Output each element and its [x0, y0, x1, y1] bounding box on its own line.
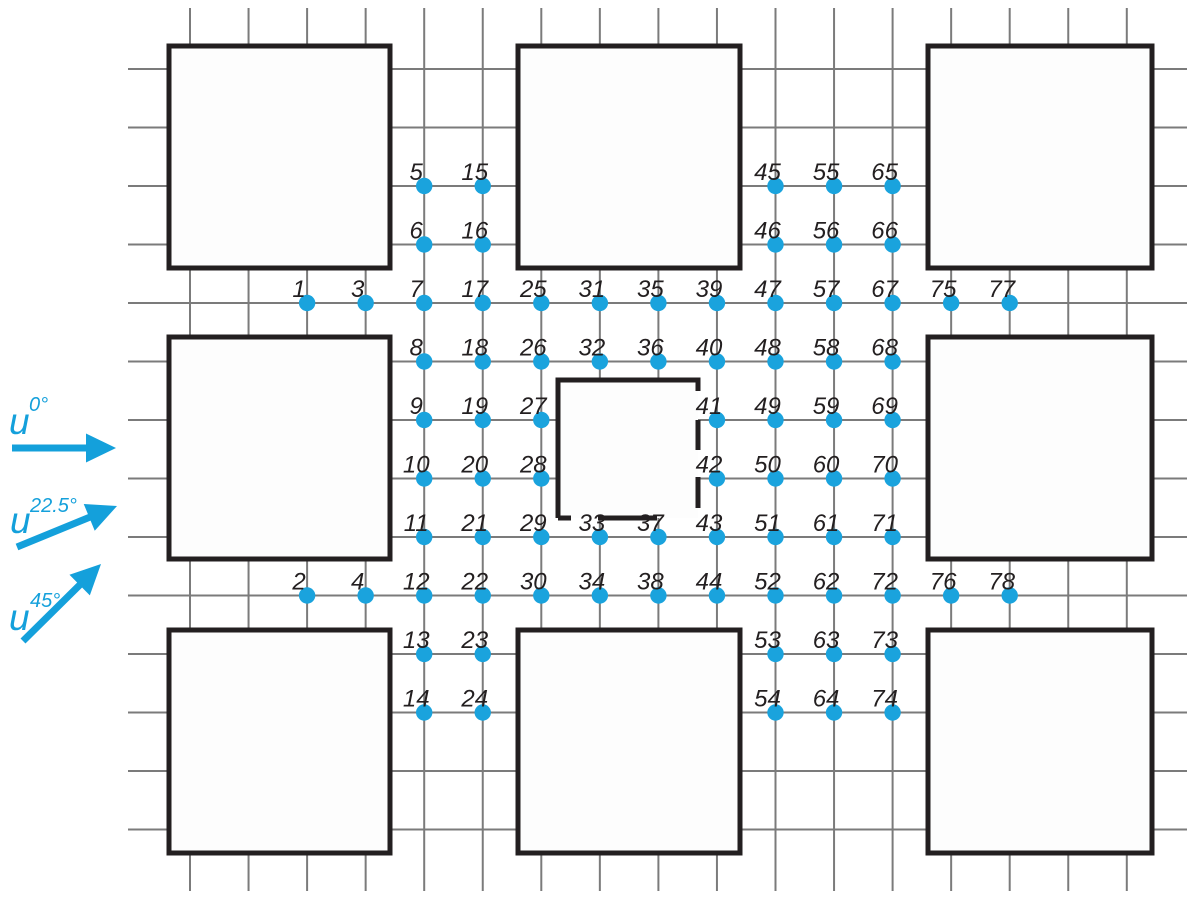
point-label-16: 16 [461, 218, 488, 245]
wind-0deg-label: u [9, 401, 30, 442]
point-label-57: 57 [813, 276, 841, 303]
building-top-right [928, 46, 1152, 268]
building-top-left [169, 46, 390, 268]
point-label-72: 72 [871, 569, 898, 596]
point-label-77: 77 [988, 276, 1016, 303]
point-label-68: 68 [871, 335, 898, 362]
wind-45deg-label: u [9, 597, 30, 638]
point-label-53: 53 [754, 627, 781, 654]
point-label-25: 25 [519, 276, 547, 303]
point-label-35: 35 [637, 276, 664, 303]
point-label-6: 6 [410, 218, 424, 245]
point-label-10: 10 [403, 452, 430, 479]
point-label-61: 61 [813, 510, 840, 537]
building-center-dashed [558, 380, 698, 518]
point-label-52: 52 [754, 569, 781, 596]
point-label-42: 42 [696, 452, 723, 479]
point-label-74: 74 [871, 686, 898, 713]
point-label-29: 29 [519, 510, 547, 537]
point-label-40: 40 [696, 335, 723, 362]
wind-0deg-label-superscript: 0° [29, 394, 48, 416]
point-label-12: 12 [403, 569, 430, 596]
point-label-2: 2 [291, 569, 305, 596]
point-label-24: 24 [460, 686, 488, 713]
point-label-48: 48 [754, 335, 781, 362]
point-label-76: 76 [930, 569, 957, 596]
building-top-center [518, 46, 740, 268]
point-label-44: 44 [696, 569, 723, 596]
point-label-31: 31 [578, 276, 605, 303]
point-label-78: 78 [988, 569, 1015, 596]
point-label-50: 50 [754, 452, 781, 479]
point-label-59: 59 [813, 393, 840, 420]
building-bottom-center [518, 630, 740, 853]
point-label-70: 70 [871, 452, 898, 479]
point-label-49: 49 [754, 393, 781, 420]
point-label-39: 39 [696, 276, 723, 303]
point-label-21: 21 [460, 510, 488, 537]
point-label-46: 46 [754, 218, 781, 245]
wind-22.5deg-label-superscript: 22.5° [29, 495, 77, 517]
point-label-3: 3 [351, 276, 365, 303]
point-label-71: 71 [871, 510, 898, 537]
point-label-63: 63 [813, 627, 840, 654]
point-label-19: 19 [461, 393, 488, 420]
point-label-20: 20 [460, 452, 488, 479]
figure-canvas: 1234567891011121314151617181920212223242… [0, 0, 1200, 900]
point-label-22: 22 [460, 569, 488, 596]
point-label-43: 43 [696, 510, 723, 537]
point-label-7: 7 [410, 276, 425, 303]
point-label-26: 26 [519, 335, 547, 362]
building-middle-right [928, 337, 1152, 559]
point-label-32: 32 [578, 335, 605, 362]
point-label-17: 17 [461, 276, 489, 303]
point-label-33: 33 [578, 510, 605, 537]
building-middle-left [169, 337, 390, 559]
point-label-55: 55 [813, 159, 840, 186]
point-label-54: 54 [754, 686, 781, 713]
point-label-60: 60 [813, 452, 840, 479]
point-label-4: 4 [351, 569, 364, 596]
point-label-28: 28 [519, 452, 547, 479]
point-label-11: 11 [404, 510, 429, 537]
point-label-1: 1 [292, 276, 305, 303]
building-bottom-left [169, 630, 390, 853]
point-label-41: 41 [696, 393, 723, 420]
point-label-58: 58 [813, 335, 840, 362]
point-label-47: 47 [754, 276, 782, 303]
point-label-27: 27 [519, 393, 548, 420]
point-label-62: 62 [813, 569, 840, 596]
point-label-30: 30 [520, 569, 547, 596]
point-label-36: 36 [637, 335, 664, 362]
point-label-34: 34 [578, 569, 605, 596]
point-label-15: 15 [461, 159, 488, 186]
point-label-5: 5 [410, 159, 424, 186]
point-label-66: 66 [871, 218, 898, 245]
center-building-fill [558, 380, 698, 518]
point-label-64: 64 [813, 686, 840, 713]
point-label-14: 14 [403, 686, 430, 713]
point-label-9: 9 [410, 393, 423, 420]
point-label-51: 51 [754, 510, 781, 537]
point-label-67: 67 [871, 276, 899, 303]
point-label-23: 23 [460, 627, 488, 654]
point-label-75: 75 [930, 276, 957, 303]
building-array-measurement-diagram: 1234567891011121314151617181920212223242… [0, 0, 1200, 900]
building-bottom-right [928, 630, 1152, 853]
point-label-8: 8 [410, 335, 424, 362]
point-label-56: 56 [813, 218, 840, 245]
wind-22.5deg-label: u [10, 500, 31, 541]
point-label-13: 13 [403, 627, 430, 654]
point-label-45: 45 [754, 159, 781, 186]
wind-45deg-label-superscript: 45° [30, 590, 60, 612]
point-label-18: 18 [461, 335, 488, 362]
point-label-65: 65 [871, 159, 898, 186]
point-label-73: 73 [871, 627, 898, 654]
point-label-38: 38 [637, 569, 664, 596]
point-label-69: 69 [871, 393, 898, 420]
point-label-37: 37 [637, 510, 665, 537]
